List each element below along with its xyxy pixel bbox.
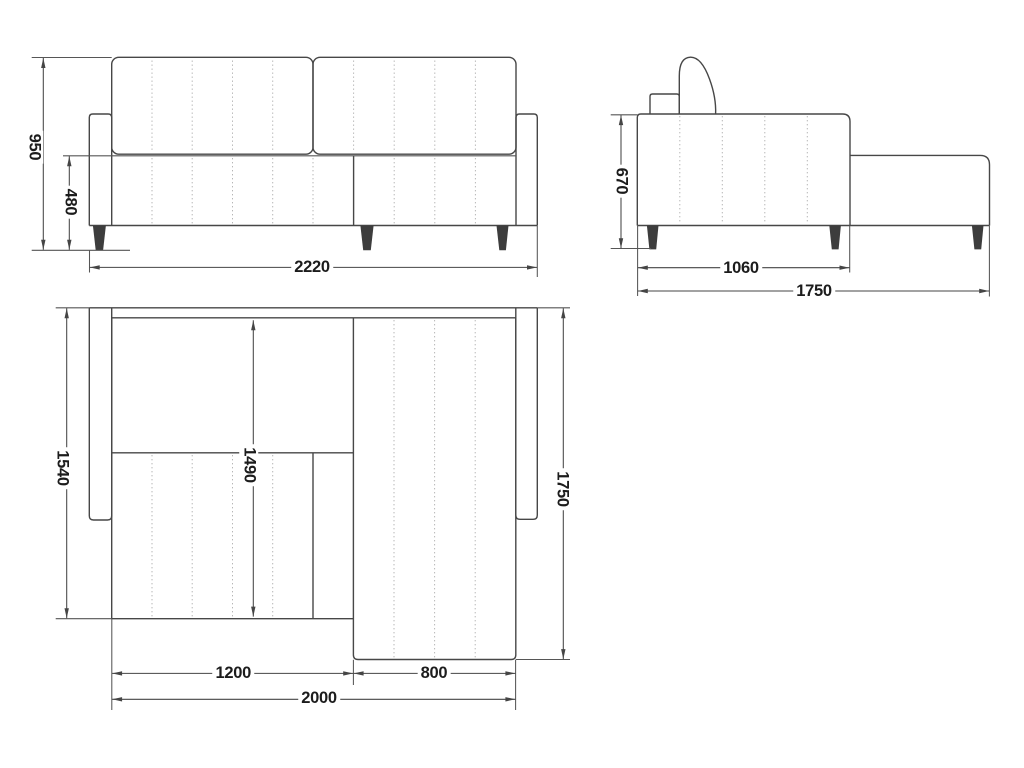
side-extension-lines [611, 115, 990, 297]
side-height-label: 670 [612, 164, 631, 197]
side-stitch-seams [680, 116, 808, 224]
front-leg-left [93, 226, 106, 251]
drawing-canvas [0, 0, 1024, 768]
side-seat-depth-label: 1060 [720, 258, 762, 277]
top-view [56, 308, 570, 710]
front-backrest-cushion-left [112, 57, 313, 154]
front-seat-height-label: 480 [61, 185, 80, 218]
top-chaise-depth-label: 1750 [552, 468, 571, 510]
top-left-depth-label: 1540 [53, 447, 72, 489]
side-armrest-profile [650, 94, 679, 114]
side-total-depth-label: 1750 [793, 282, 835, 301]
sofa-technical-drawing: 950 480 2220 670 1060 1750 1540 1490 175… [0, 0, 1024, 768]
front-extension-lines [32, 58, 538, 278]
front-leg-middle [360, 226, 373, 251]
front-armrest-right [516, 114, 537, 226]
front-total-width-label: 2220 [291, 258, 333, 277]
top-armrest-left [89, 308, 111, 520]
side-chaise [850, 155, 990, 225]
front-backrest-cushion-right [313, 57, 516, 154]
front-view [32, 57, 538, 277]
top-chaise-width-label: 800 [418, 664, 451, 683]
front-armrest-left [89, 114, 111, 226]
top-bed-section-width-label: 1200 [213, 664, 255, 683]
top-bed-length-label: 1490 [239, 444, 258, 486]
top-bed-width-label: 2000 [298, 689, 340, 708]
side-leg-left [647, 226, 659, 250]
side-leg-middle [829, 226, 841, 250]
front-leg-right [497, 226, 509, 251]
top-armrest-right [516, 308, 538, 520]
side-view [611, 57, 990, 296]
front-total-height-label: 950 [24, 131, 43, 164]
side-back-pillow [679, 57, 715, 114]
side-leg-right [972, 226, 984, 250]
side-body [637, 114, 850, 226]
